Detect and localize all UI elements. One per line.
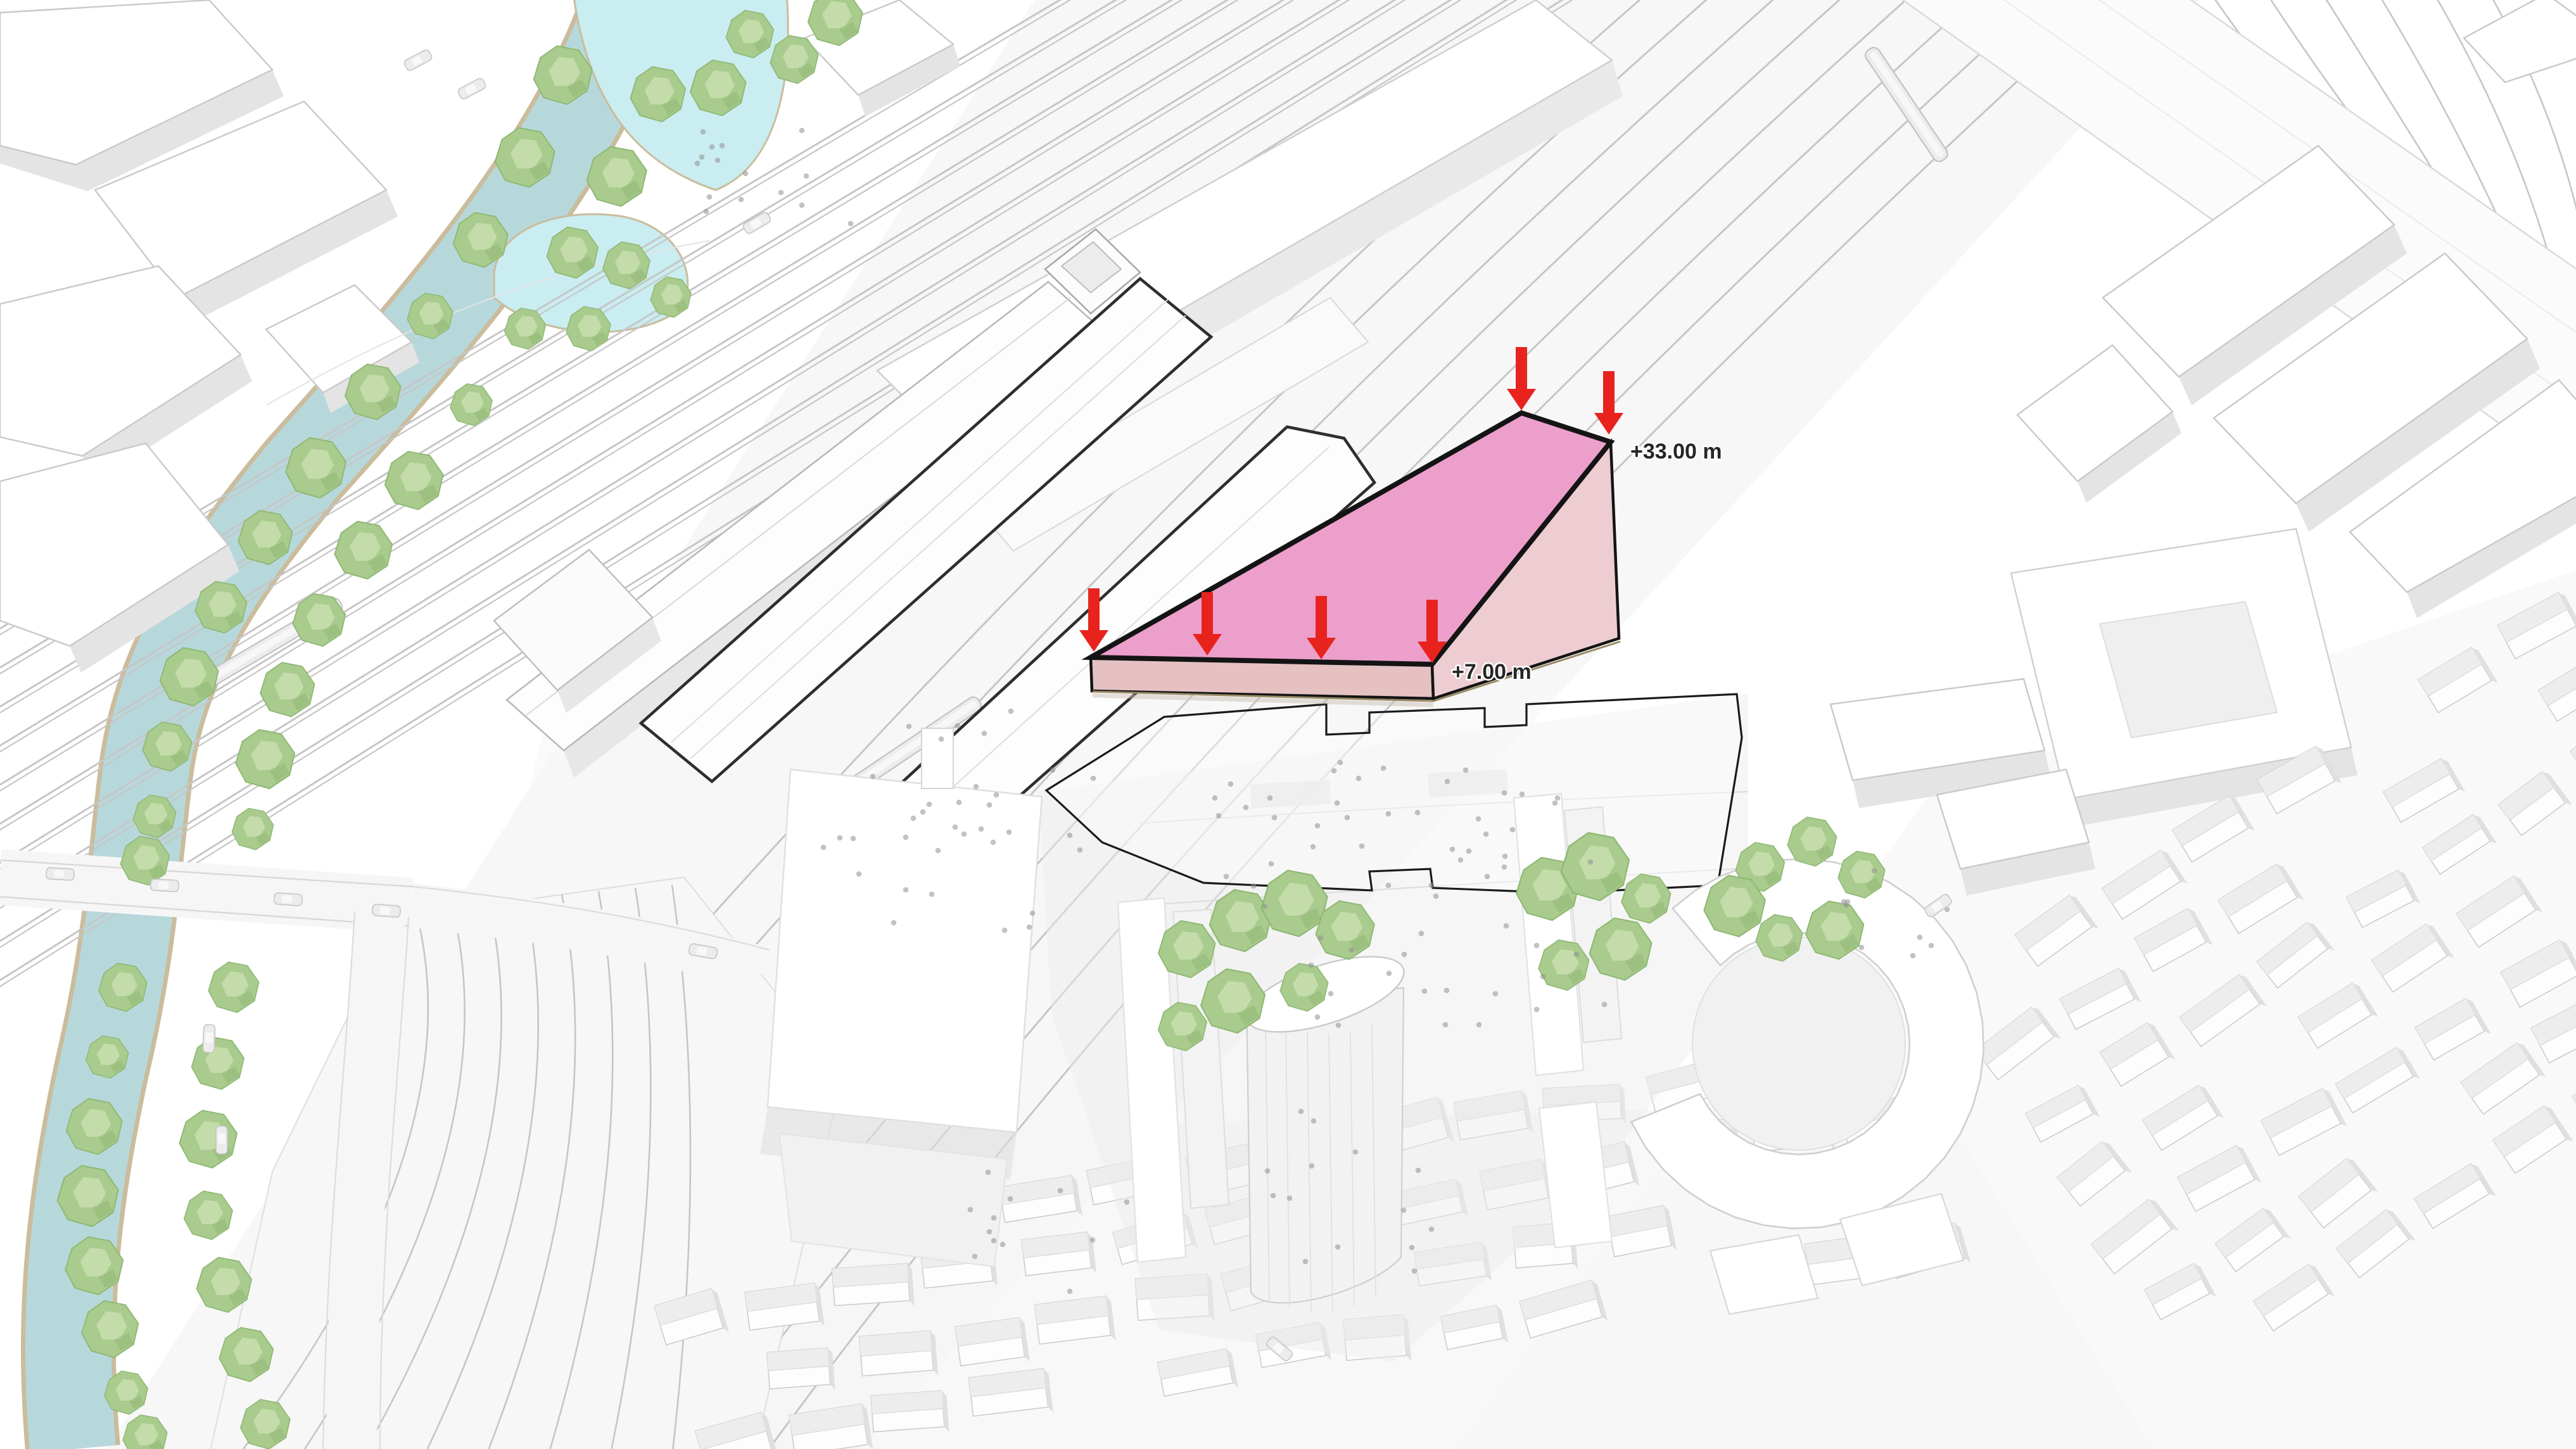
car [372,904,400,917]
car [203,1025,215,1053]
car [46,868,75,880]
car [274,892,302,906]
car [216,1126,227,1154]
upper-height-label: +33.00 m [1630,440,1722,464]
big-white-box [768,769,1042,1132]
scene-svg: +33.00 m +7.00 m [0,0,2576,1449]
car [151,879,179,892]
lower-height-label: +7.00 m [1452,660,1532,684]
massing-diagram: +33.00 m +7.00 m [0,0,2576,1449]
